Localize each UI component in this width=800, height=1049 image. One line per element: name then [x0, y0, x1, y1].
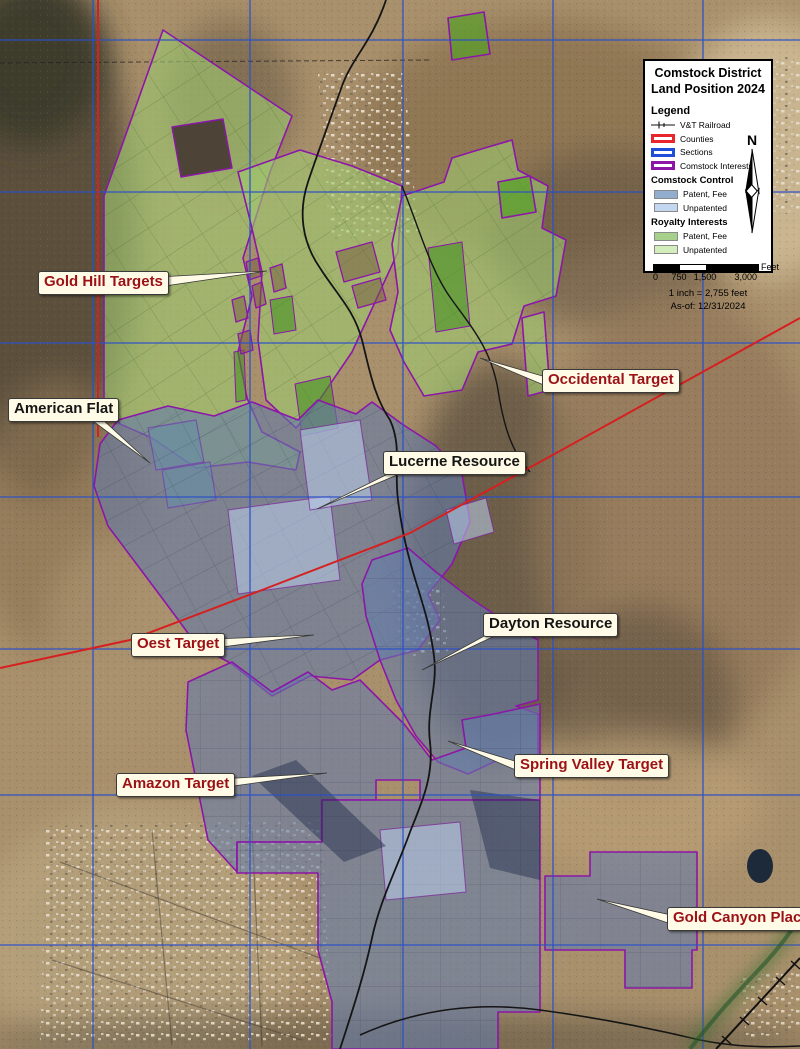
legend-heading: Legend: [651, 105, 765, 117]
north-label: N: [740, 133, 764, 147]
legend-item-label: V&T Railroad: [680, 120, 730, 130]
scale-ratio-text: 1 inch = 2,755 feet: [651, 288, 765, 299]
label-american-flat: American Flat: [8, 398, 119, 422]
legend-item-label: Patent, Fee: [683, 231, 727, 241]
legend-subheading-label: Comstock Control: [651, 175, 733, 186]
label-lucerne-resource: Lucerne Resource: [383, 451, 526, 475]
royalty-parcel-small: [448, 12, 490, 60]
scale-unit-label: Feet: [761, 262, 779, 272]
royalty-patent-swatch: [654, 232, 678, 241]
legend-item-royalty-unpatented: Unpatented: [651, 244, 765, 255]
counties-swatch: [651, 134, 675, 143]
scale-tick: 1,500: [694, 272, 717, 282]
scale-tick: 750: [671, 272, 686, 282]
label-occidental-target: Occidental Target: [542, 369, 680, 393]
map-title-line2: Land Position 2024: [651, 82, 765, 98]
excluded-parcel-hole: [172, 119, 232, 177]
scale-bar: [653, 264, 759, 271]
royalty-unpatented-swatch: [654, 245, 678, 254]
map-title-line1: Comstock District: [651, 66, 765, 82]
control-patent-swatch: [654, 190, 678, 199]
legend-item-label: Counties: [680, 134, 714, 144]
legend-subheading-label: Royalty Interests: [651, 217, 728, 228]
legend-item-label: Unpatented: [683, 203, 727, 213]
control-unpatented-swatch: [654, 203, 678, 212]
sections-swatch: [651, 148, 675, 157]
scale-bar-segment: [654, 265, 680, 270]
scale-bar-ticks: 0 750 1,500 3,000: [653, 272, 757, 283]
legend-item-label: Patent, Fee: [683, 189, 727, 199]
railroad-symbol-icon: [651, 120, 675, 130]
royalty-parcel-small: [498, 176, 536, 218]
scale-tick: 3,000: [734, 272, 757, 282]
label-gold-canyon-place: Gold Canyon Place: [667, 907, 800, 931]
label-dayton-resource: Dayton Resource: [483, 613, 618, 637]
north-arrow: N: [740, 133, 764, 240]
label-amazon-target: Amazon Target: [116, 773, 235, 797]
north-arrow-needle-icon: [742, 147, 762, 235]
pond: [747, 849, 773, 883]
label-oest-target: Oest Target: [131, 633, 225, 657]
scale-bar-segment: [706, 265, 758, 270]
legend-item-label: Unpatented: [683, 245, 727, 255]
as-of-date: As-of: 12/31/2024: [651, 301, 765, 312]
comstock-interests-swatch: [651, 161, 675, 170]
scale-tick: 0: [653, 272, 658, 282]
scale-bar-block: Feet 0 750 1,500 3,000: [651, 264, 765, 283]
label-spring-valley-target: Spring Valley Target: [514, 754, 669, 778]
label-gold-hill-targets: Gold Hill Targets: [38, 271, 169, 295]
legend-item-label: Sections: [680, 147, 713, 157]
scale-bar-segment: [680, 265, 706, 270]
legend-item-railroad: V&T Railroad: [651, 120, 765, 131]
legend-panel: Comstock District Land Position 2024 Leg…: [643, 59, 773, 273]
comstock-district-map: Gold Hill Targets Occidental Target Amer…: [0, 0, 800, 1049]
